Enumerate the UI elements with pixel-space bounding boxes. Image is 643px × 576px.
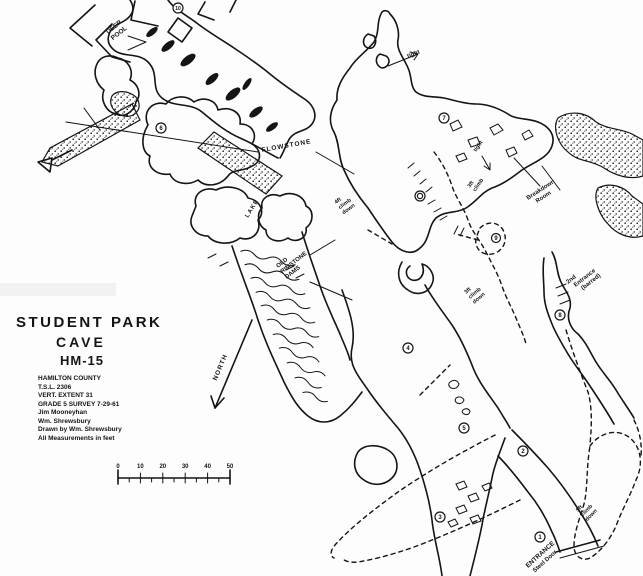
scale-tick-label: 0 [116, 464, 120, 470]
dashed-loop-bottom [331, 435, 520, 562]
label-tight-top: tight [407, 49, 421, 59]
grade-survey-line: GRADE 5 SURVEY 7-29-61 [38, 401, 206, 410]
map-title: STUDENT PARK [16, 314, 206, 331]
breakdown-blocks-room [450, 120, 533, 162]
survey-station: 3 [435, 512, 445, 522]
svg-text:tight: tight [473, 140, 485, 153]
rimstone-label-leaders [310, 240, 352, 300]
title-block: STUDENT PARK CAVE HM-15 HAMILTON COUNTY … [16, 314, 206, 443]
survey-station-marker [415, 191, 425, 201]
cave-map-page: 1 2 3 4 5 6 7 8 9 10 DEEP POOL tight FLO… [0, 0, 643, 576]
surveyor-2: Wm. Shrewsbury [38, 418, 206, 427]
deep-pool-arrow [128, 36, 146, 50]
breakdown-blocks-trunk [448, 481, 492, 527]
scale-tick-label: 30 [182, 464, 189, 470]
label-3ft-climb-right: 3ft climb [467, 173, 486, 192]
label-entrance: ENTRANCE Steel Door [525, 540, 562, 576]
vert-extent-line: VERT. EXTENT 31 [38, 392, 206, 401]
tsl-line: T.S.L. 2306 [38, 384, 206, 393]
scale-tick-label: 10 [137, 464, 144, 470]
cave-map-drawing: 1 2 3 4 5 6 7 8 9 10 DEEP POOL tight FLO… [0, 0, 643, 576]
passage-curl [399, 262, 434, 293]
surveyor-1: Jim Mooneyhan [38, 409, 206, 418]
tick-fans [408, 163, 447, 220]
top-diamond-feature [168, 18, 192, 42]
room-isolated-small [355, 446, 397, 485]
survey-station: 1 [535, 532, 545, 542]
trunk-rocks [449, 380, 470, 414]
scale-tick-label: 50 [227, 464, 234, 470]
passage-entrance-branch [498, 430, 604, 558]
label-3ft-climb-center: 3ft climb down [463, 281, 487, 305]
survey-details: HAMILTON COUNTY T.S.L. 2306 VERT. EXTENT… [38, 375, 206, 443]
survey-station: 2 [518, 446, 528, 456]
survey-station: 4 [403, 343, 413, 353]
svg-text:climb: climb [472, 177, 486, 193]
tight-right-arrow [482, 156, 490, 170]
rooms-left-middle [143, 97, 312, 278]
survey-station: 7 [439, 113, 449, 123]
units-note: All Measurements in feet [38, 435, 206, 444]
dashed-lower-level-link [368, 152, 526, 344]
label-4ft-climb-down: 4ft climb down [334, 192, 357, 216]
drawn-by-line: Drawn by Wm. Shrewsbury [38, 426, 206, 435]
label-breakdown-room: Breakdown Room [526, 179, 561, 208]
survey-station: 5 [459, 423, 469, 433]
svg-text:tight: tight [407, 49, 421, 59]
label-flowstone: FLOWSTONE [261, 138, 312, 154]
room-top-right-complex [330, 11, 643, 253]
steel-door-bar [556, 540, 600, 552]
svg-text:FLOWSTONE: FLOWSTONE [261, 138, 312, 154]
county-line: HAMILTON COUNTY [38, 375, 206, 384]
scale-tick-label: 20 [159, 464, 166, 470]
survey-station: 10 [173, 3, 183, 13]
label-tight-right: tight [473, 140, 485, 153]
survey-station: 6 [156, 123, 166, 133]
survey-station: 8 [555, 310, 565, 320]
svg-text:10: 10 [175, 6, 181, 12]
scale-bar: 0 10 20 30 40 50 [116, 464, 234, 484]
survey-station: 9 [492, 234, 501, 243]
north-arrow: NORTH [211, 320, 252, 408]
scale-tick-label: 40 [204, 464, 211, 470]
label-second-entrance: 2nd Entrance (barred) [566, 262, 602, 297]
map-title-cave: CAVE [56, 334, 206, 350]
north-label: NORTH [212, 353, 229, 382]
passage-main-trunk [342, 285, 510, 576]
map-id: HM-15 [60, 353, 206, 368]
